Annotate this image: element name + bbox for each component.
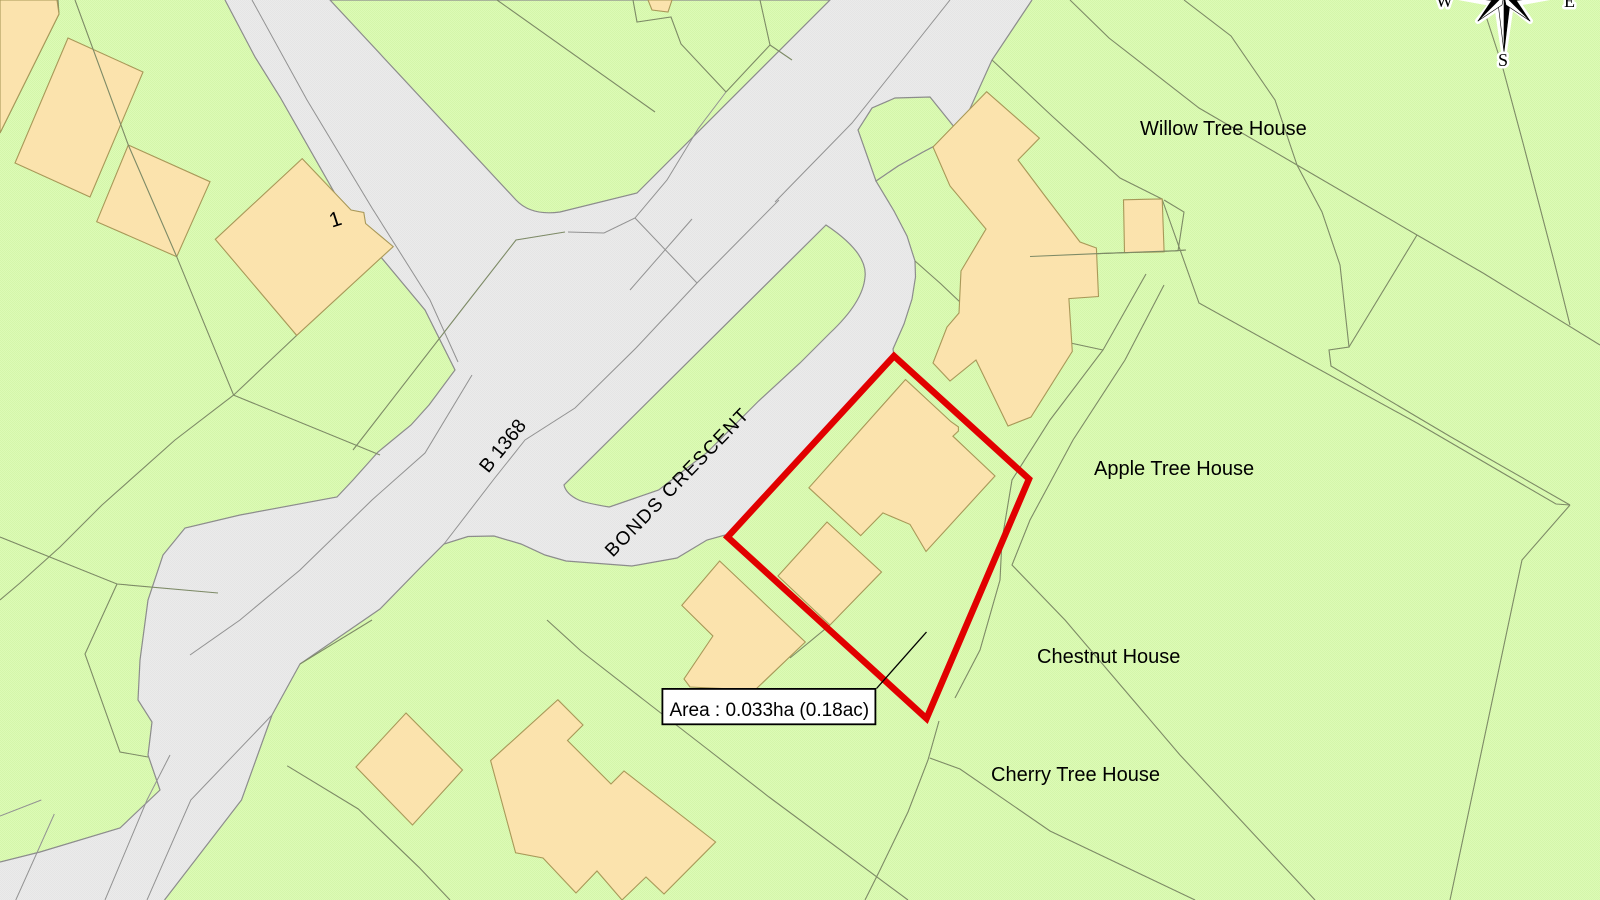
svg-text:Willow Tree House: Willow Tree House	[1140, 118, 1307, 140]
svg-text:W: W	[1436, 0, 1453, 11]
svg-text:Cherry Tree House: Cherry Tree House	[991, 764, 1160, 786]
svg-text:Area : 0.033ha (0.18ac): Area : 0.033ha (0.18ac)	[670, 700, 870, 721]
svg-text:Apple Tree House: Apple Tree House	[1094, 458, 1254, 480]
svg-text:E: E	[1564, 0, 1575, 11]
svg-text:S: S	[1498, 50, 1508, 70]
svg-text:Chestnut House: Chestnut House	[1037, 646, 1180, 668]
